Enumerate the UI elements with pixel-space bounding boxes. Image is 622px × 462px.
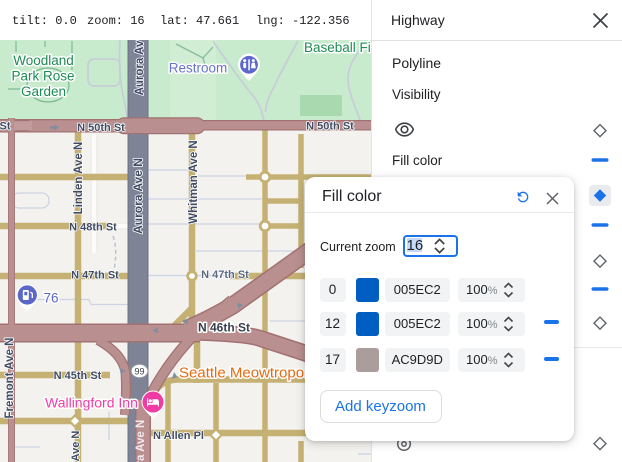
svg-text:St: St	[0, 121, 11, 133]
svg-text:Aurora Ave N: Aurora Ave N	[131, 158, 145, 234]
svg-text:N 50th St: N 50th St	[306, 121, 354, 133]
svg-text:N 48th St: N 48th St	[69, 222, 117, 234]
svg-text:N 47th St: N 47th St	[201, 269, 249, 281]
svg-text:Aurora Av: Aurora Av	[134, 40, 146, 95]
svg-text:Restroom: Restroom	[169, 61, 228, 76]
svg-text:99: 99	[134, 367, 144, 377]
svg-text:Woodland: Woodland	[13, 53, 74, 68]
svg-text:N Allen Pl: N Allen Pl	[153, 430, 204, 442]
svg-text:Wallingford Inn: Wallingford Inn	[45, 395, 138, 411]
svg-text:N 47th St: N 47th St	[71, 270, 119, 282]
svg-text:Garden: Garden	[21, 84, 66, 99]
svg-text:Linden Ave N: Linden Ave N	[73, 142, 85, 215]
svg-text:Whitman Ave N: Whitman Ave N	[188, 140, 200, 224]
svg-text:Ave N: Ave N	[70, 431, 82, 462]
svg-text:Seattle Meowtropoli: Seattle Meowtropoli	[179, 365, 311, 382]
svg-text:Fremont Ave N: Fremont Ave N	[4, 338, 16, 419]
svg-text:N 50th St: N 50th St	[77, 122, 125, 134]
svg-text:N 46th St: N 46th St	[198, 321, 250, 335]
svg-text:Baseball Fi: Baseball Fi	[304, 40, 371, 55]
svg-text:Park Rose: Park Rose	[11, 69, 74, 84]
svg-text:N 45th St: N 45th St	[54, 370, 102, 382]
svg-text:Aurora Ave N: Aurora Ave N	[135, 420, 147, 462]
svg-text:76: 76	[44, 291, 59, 306]
